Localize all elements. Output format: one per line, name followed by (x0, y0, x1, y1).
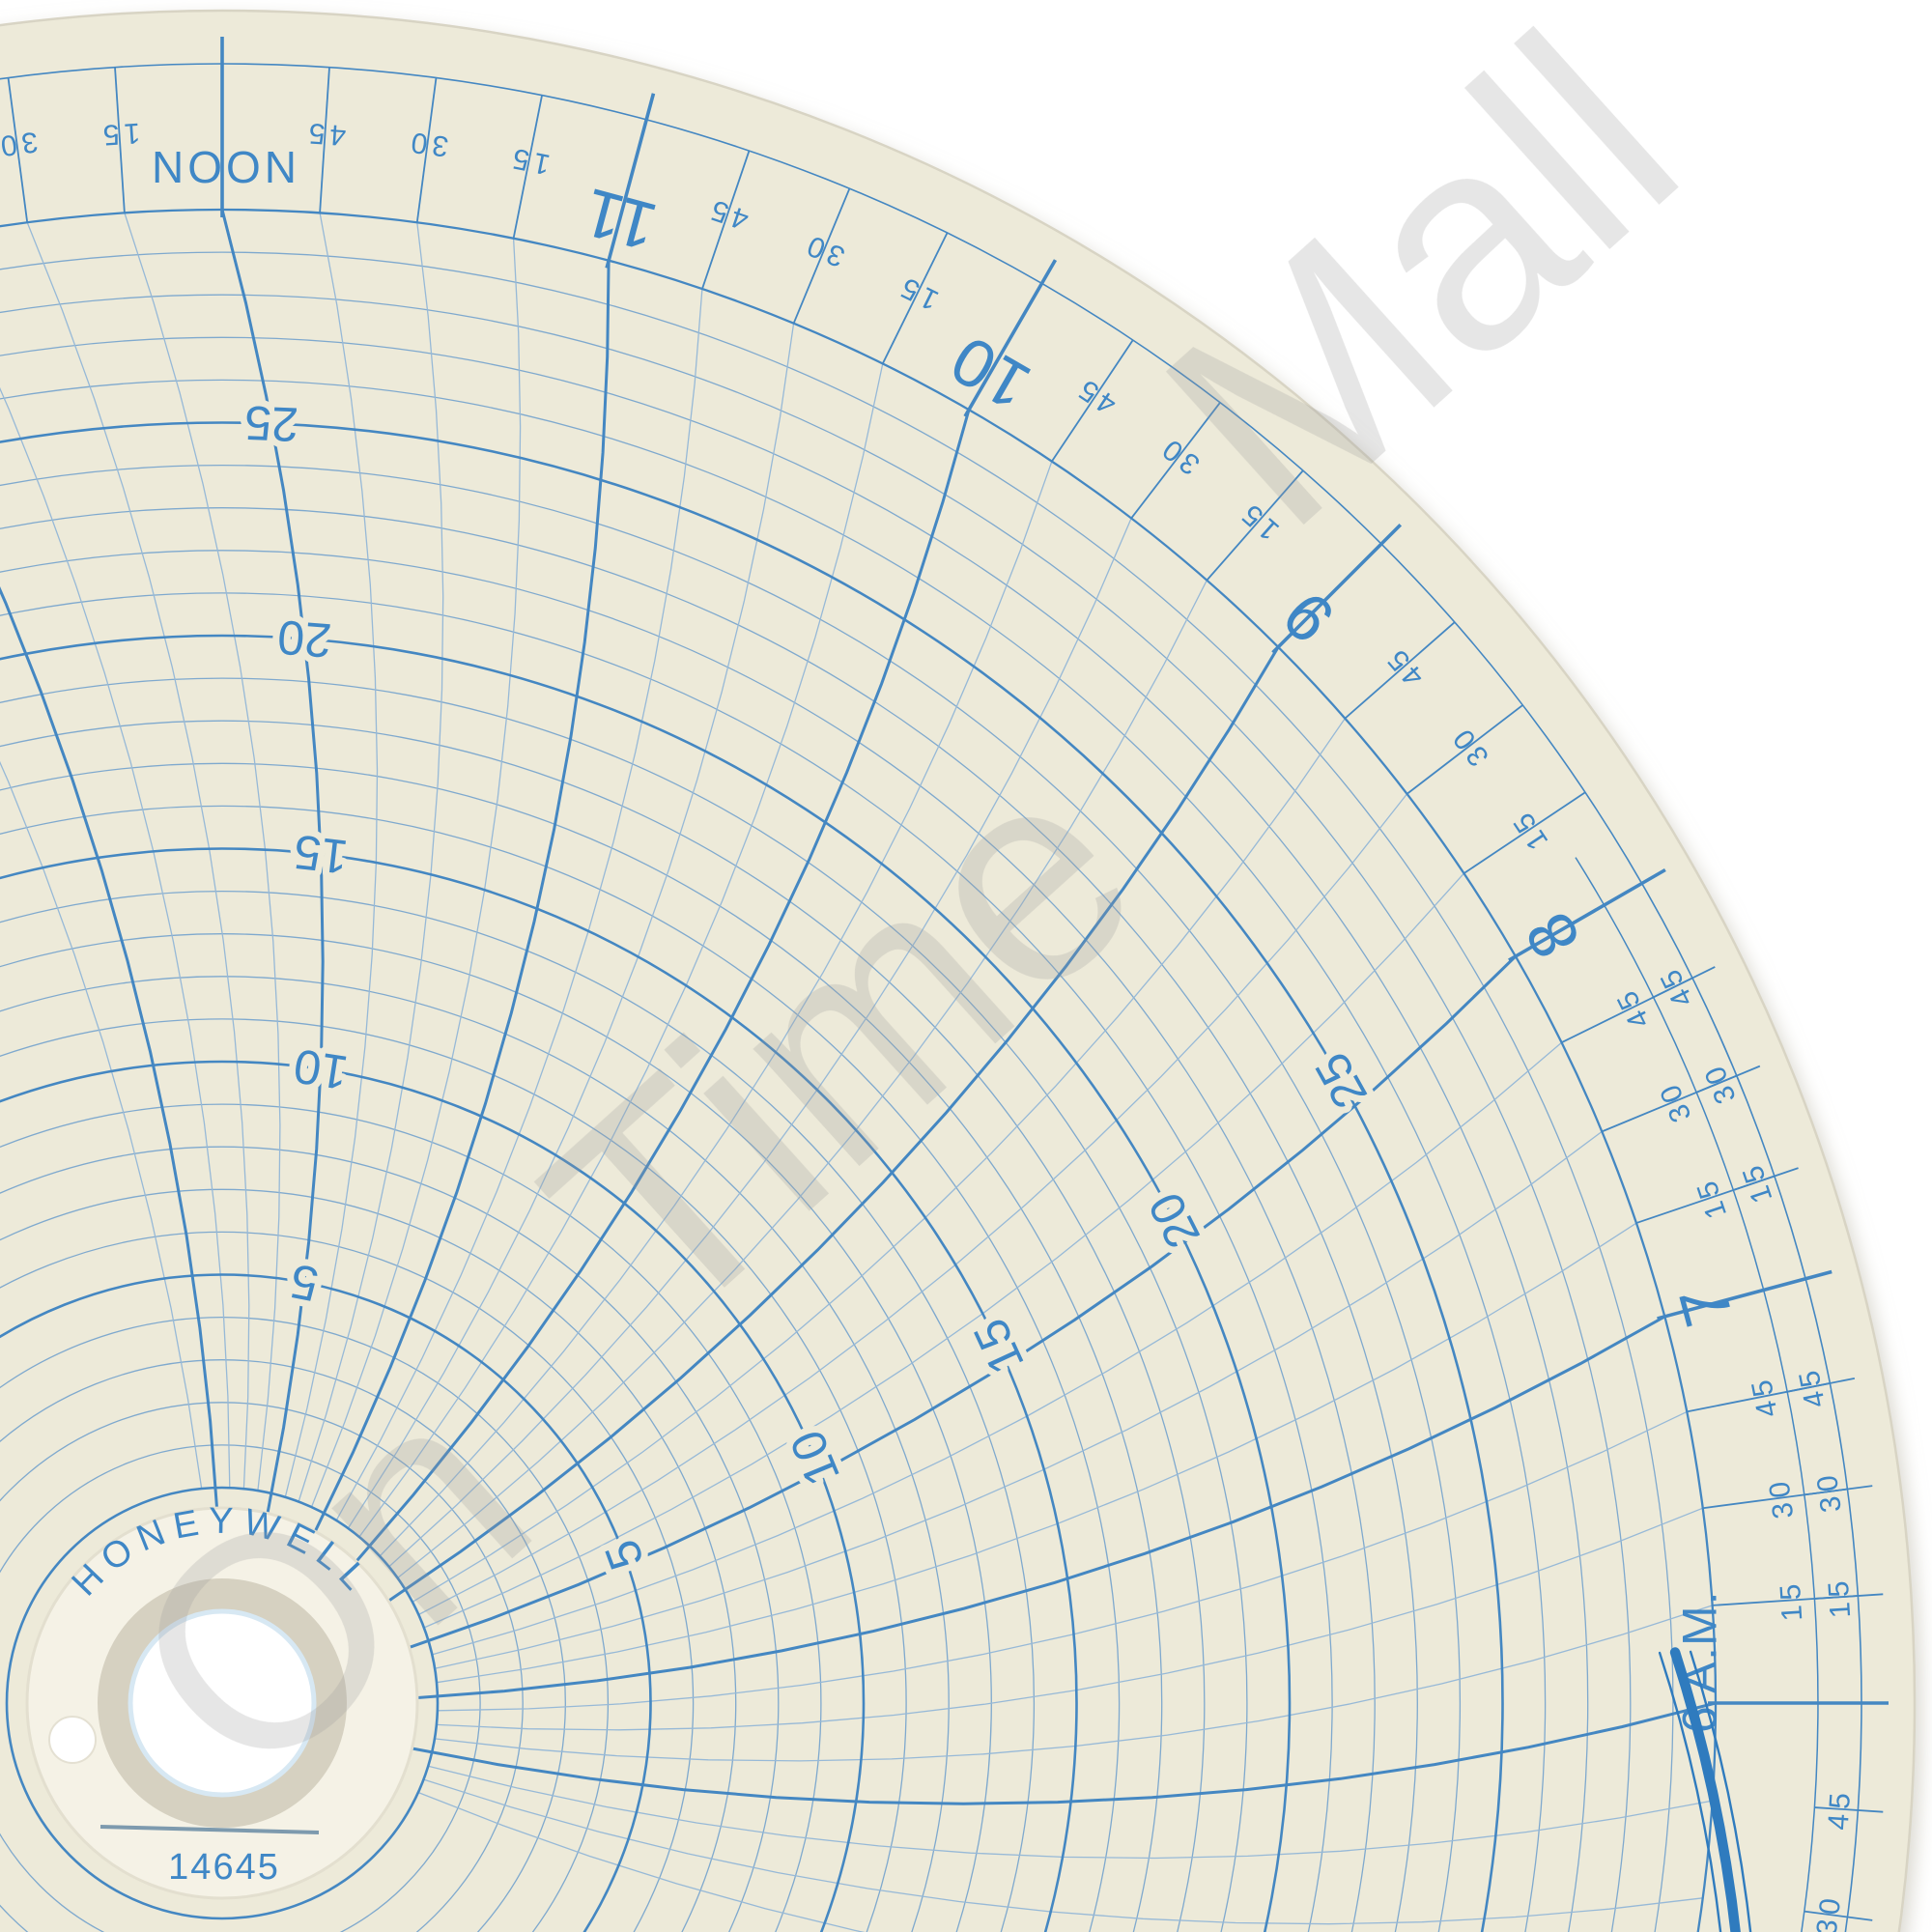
minute-label: 15 (98, 117, 141, 152)
product-photo-stage: 4530154530154530154530154530154545303015… (0, 0, 1932, 1932)
minute-label-outer: 45 (1822, 1787, 1857, 1831)
value-ring-label: 15 (291, 824, 351, 884)
pilot-hole (49, 1717, 96, 1763)
minute-label: 45 (303, 117, 347, 152)
value-ring-label: 20 (275, 610, 333, 668)
minute-label: 30 (0, 126, 40, 162)
minute-label-outer: 15 (1823, 1576, 1858, 1619)
minute-label-outer: 30 (1810, 1891, 1847, 1932)
value-ring-label: 10 (290, 1038, 352, 1100)
value-ring-label: 25 (243, 395, 299, 451)
minute-label: 30 (405, 126, 450, 162)
minute-label: 15 (1775, 1578, 1809, 1622)
hour-label-noon: NOON (148, 142, 297, 192)
circular-chart-paper: 4530154530154530154530154530154545303015… (0, 0, 1932, 1932)
minute-label: 30 (1763, 1475, 1800, 1520)
minute-label-outer: 30 (1810, 1468, 1847, 1514)
part-number: 14645 (168, 1847, 280, 1888)
